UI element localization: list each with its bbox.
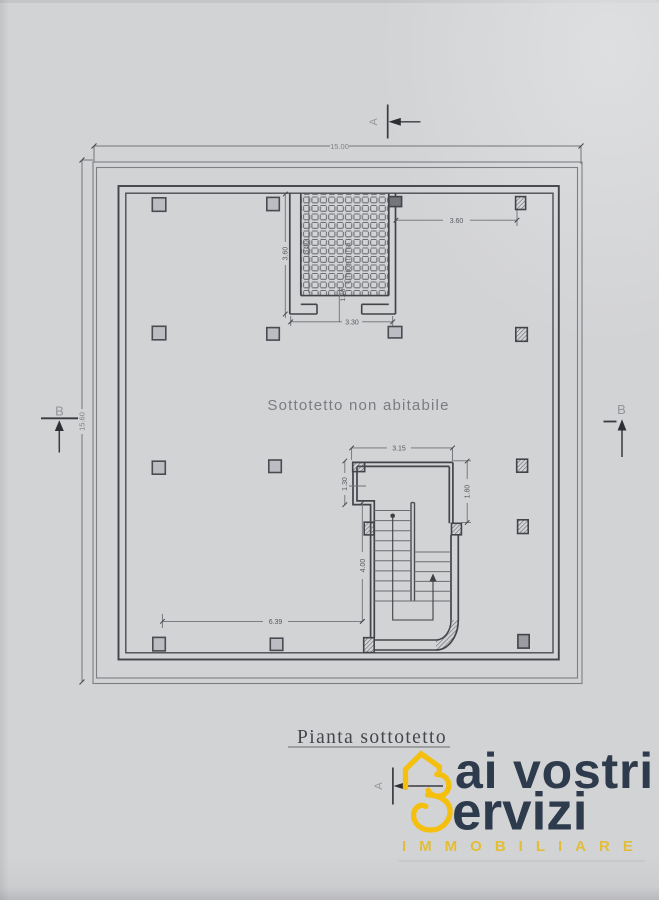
svg-text:3.30: 3.30 — [345, 320, 359, 327]
svg-text:Chiostrina: Chiostrina — [344, 242, 353, 284]
svg-text:A: A — [368, 117, 380, 125]
svg-text:B: B — [617, 402, 626, 417]
svg-text:3.15: 3.15 — [392, 446, 406, 453]
svg-text:B: B — [55, 404, 64, 419]
svg-text:Sottotetto non abitabile: Sottotetto non abitabile — [267, 397, 449, 414]
svg-text:ervizi: ervizi — [452, 783, 588, 842]
svg-text:IMMOBILIARE: IMMOBILIARE — [402, 838, 646, 855]
svg-text:15.60: 15.60 — [78, 412, 87, 431]
svg-text:Pianta sottotetto: Pianta sottotetto — [297, 727, 447, 748]
svg-text:6.39: 6.39 — [269, 619, 283, 626]
svg-text:3.60: 3.60 — [450, 218, 464, 225]
svg-text:4.00: 4.00 — [360, 559, 367, 573]
svg-text:3.30: 3.30 — [304, 240, 311, 254]
svg-text:1.80: 1.80 — [465, 485, 472, 499]
svg-text:1.30: 1.30 — [342, 477, 349, 491]
svg-text:A: A — [373, 782, 385, 790]
svg-text:1.70: 1.70 — [340, 288, 347, 301]
svg-text:15.00: 15.00 — [330, 142, 349, 151]
svg-text:3.60: 3.60 — [283, 247, 290, 261]
